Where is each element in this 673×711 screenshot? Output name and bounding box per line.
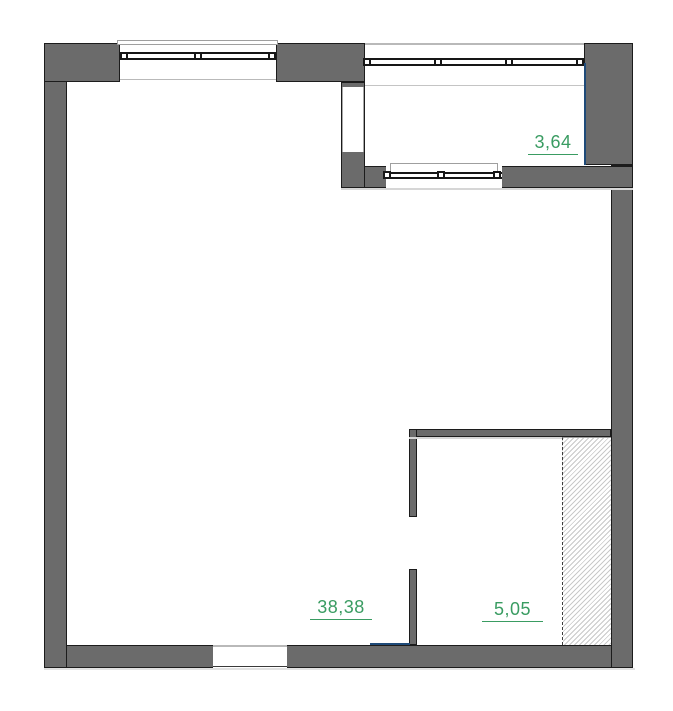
window-balcony-post-3 [505,58,513,66]
entrance-opening [213,645,287,668]
wall-top-middle [276,43,365,82]
window-main-post-right [268,52,276,60]
wall-left [44,43,67,668]
area-value-balcony: 3,64 [534,132,571,152]
partition-small-room-upper [409,429,417,517]
window-main-inner-line [120,79,276,80]
window-balcony-inner-line [365,85,584,86]
floor-plan: 3,64 38,38 5,05 [0,0,673,711]
wall-right [611,165,633,668]
window-balcony-post-1 [363,58,371,66]
area-label-small-room: 5,05 [482,599,543,622]
window-block-post-left [383,171,391,179]
partition-small-room-top [409,429,611,437]
blue-marker-bottom-wall [370,643,410,645]
wall-bottom [44,645,633,668]
window-block-post-middle [437,171,445,179]
wall-balcony-right [584,43,633,165]
window-balcony-post-4 [576,58,584,66]
bottom-wall-shadow [44,668,635,670]
entrance-threshold-line [213,645,287,647]
area-value-small-room: 5,05 [494,599,531,619]
balcony-wall-shadow [341,188,633,190]
window-main-post-middle [194,52,202,60]
window-balcony-frame [367,58,582,66]
area-value-main-room: 38,38 [317,597,365,617]
window-block-post-right [493,171,501,179]
entrance-outer-line [213,666,287,667]
window-balcony-post-2 [434,58,442,66]
window-main-opening [120,45,276,81]
window-balcony-outer-line [365,43,584,45]
balcony-doorway-opening [342,87,364,152]
hatched-zone [562,437,611,645]
window-main-post-left [120,52,128,60]
wall-top-left [44,43,120,82]
blue-marker-balcony-edge [584,63,586,165]
area-label-main-room: 38,38 [310,597,372,620]
area-label-balcony: 3,64 [528,132,578,155]
partition-small-room-lower [409,569,417,645]
